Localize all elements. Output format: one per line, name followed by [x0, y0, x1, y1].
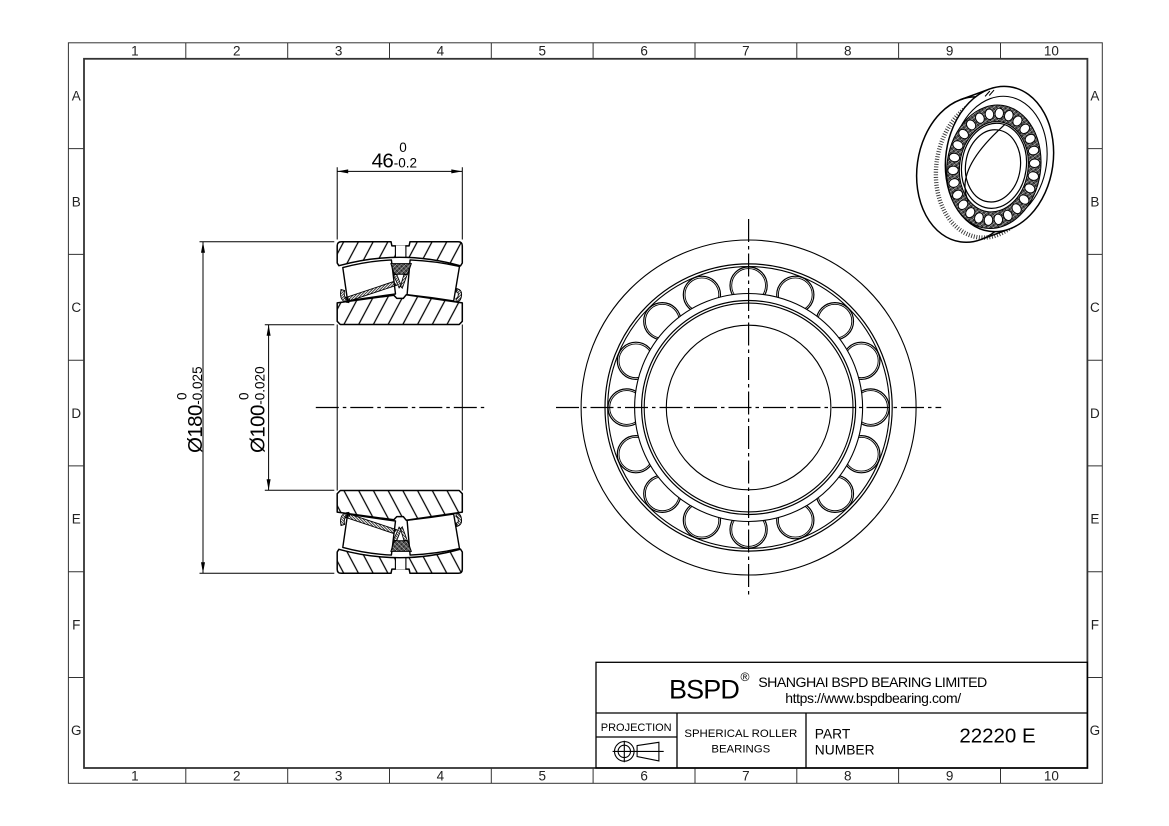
- svg-text:B: B: [72, 194, 81, 209]
- svg-text:https://www.bspdbearing.com/: https://www.bspdbearing.com/: [785, 690, 961, 706]
- svg-text:A: A: [72, 89, 81, 104]
- svg-text:PROJECTION: PROJECTION: [601, 722, 672, 734]
- svg-text:4: 4: [437, 43, 445, 58]
- svg-text:5: 5: [538, 43, 546, 58]
- svg-text:®: ®: [741, 670, 750, 684]
- svg-text:1: 1: [131, 768, 139, 783]
- svg-text:SPHERICAL ROLLER: SPHERICAL ROLLER: [684, 728, 797, 740]
- svg-text:D: D: [71, 406, 81, 421]
- svg-text:C: C: [1090, 300, 1100, 315]
- svg-text:PART: PART: [815, 726, 851, 741]
- svg-text:8: 8: [844, 768, 852, 783]
- svg-text:F: F: [72, 617, 80, 632]
- svg-text:8: 8: [844, 43, 852, 58]
- svg-text:BSPD: BSPD: [669, 674, 739, 704]
- svg-text:-0.025: -0.025: [190, 366, 205, 404]
- svg-text:7: 7: [742, 768, 750, 783]
- svg-text:7: 7: [742, 43, 750, 58]
- svg-text:9: 9: [946, 43, 954, 58]
- svg-text:2: 2: [233, 43, 241, 58]
- svg-text:E: E: [1090, 512, 1099, 527]
- svg-text:D: D: [1090, 406, 1100, 421]
- svg-text:6: 6: [640, 43, 648, 58]
- svg-text:0: 0: [174, 392, 189, 400]
- svg-text:F: F: [1091, 617, 1099, 632]
- svg-text:NUMBER: NUMBER: [815, 743, 875, 758]
- svg-text:G: G: [71, 723, 82, 738]
- svg-text:0: 0: [399, 140, 407, 155]
- svg-text:46: 46: [372, 150, 394, 173]
- svg-text:G: G: [1090, 723, 1101, 738]
- svg-text:-0.020: -0.020: [252, 366, 267, 404]
- svg-text:E: E: [72, 512, 81, 527]
- svg-text:5: 5: [538, 768, 546, 783]
- svg-text:Ø100: Ø100: [246, 405, 269, 453]
- svg-text:22220 E: 22220 E: [959, 725, 1035, 748]
- svg-text:0: 0: [236, 392, 251, 400]
- svg-text:1: 1: [131, 43, 139, 58]
- svg-text:2: 2: [233, 768, 241, 783]
- svg-text:SHANGHAI BSPD BEARING LIMITED: SHANGHAI BSPD BEARING LIMITED: [758, 675, 987, 691]
- svg-text:-0.2: -0.2: [394, 156, 417, 171]
- svg-text:BEARINGS: BEARINGS: [711, 743, 770, 755]
- svg-text:B: B: [1090, 194, 1099, 209]
- svg-text:A: A: [1090, 89, 1099, 104]
- svg-text:4: 4: [437, 768, 445, 783]
- svg-text:10: 10: [1044, 43, 1059, 58]
- svg-text:9: 9: [946, 768, 954, 783]
- svg-text:Ø180: Ø180: [184, 405, 207, 453]
- svg-text:6: 6: [640, 768, 648, 783]
- svg-text:3: 3: [335, 768, 343, 783]
- svg-text:C: C: [71, 300, 81, 315]
- svg-text:3: 3: [335, 43, 343, 58]
- svg-text:10: 10: [1044, 768, 1059, 783]
